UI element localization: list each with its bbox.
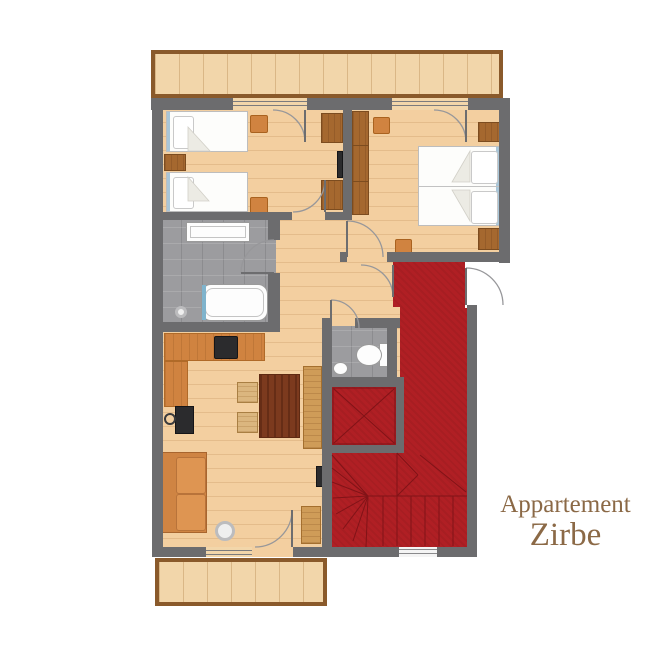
- plan-annotations: [0, 0, 660, 660]
- door-arc-bedroom2: [347, 221, 383, 257]
- door-arc-wc: [331, 300, 359, 328]
- door-arc-bathroom: [241, 240, 274, 273]
- duvet-fold-double-a: [452, 151, 470, 182]
- elevator-cross: [333, 388, 395, 444]
- plan-title-line1: Appartement: [478, 492, 653, 518]
- duvet-fold-bed1: [188, 127, 210, 151]
- door-arc-hall-corridor: [361, 265, 393, 297]
- floor-plan-appartement-zirbe: Appartement Zirbe: [0, 0, 660, 660]
- door-arc-living-balcony: [255, 510, 292, 547]
- plan-title: Appartement Zirbe: [478, 492, 653, 552]
- plan-title-line2: Zirbe: [478, 518, 653, 552]
- door-arc-bedroom2-balcony: [434, 110, 466, 142]
- duvet-fold-double-b: [452, 190, 470, 221]
- stair-steps-fan: [332, 455, 368, 547]
- door-arc-bedroom1-balcony: [273, 110, 305, 142]
- door-arc-entry: [466, 268, 503, 305]
- duvet-fold-bed2: [188, 177, 209, 201]
- stair-landing: [397, 453, 466, 496]
- door-arc-bedroom1: [293, 180, 325, 212]
- stair-steps-straight: [368, 496, 467, 546]
